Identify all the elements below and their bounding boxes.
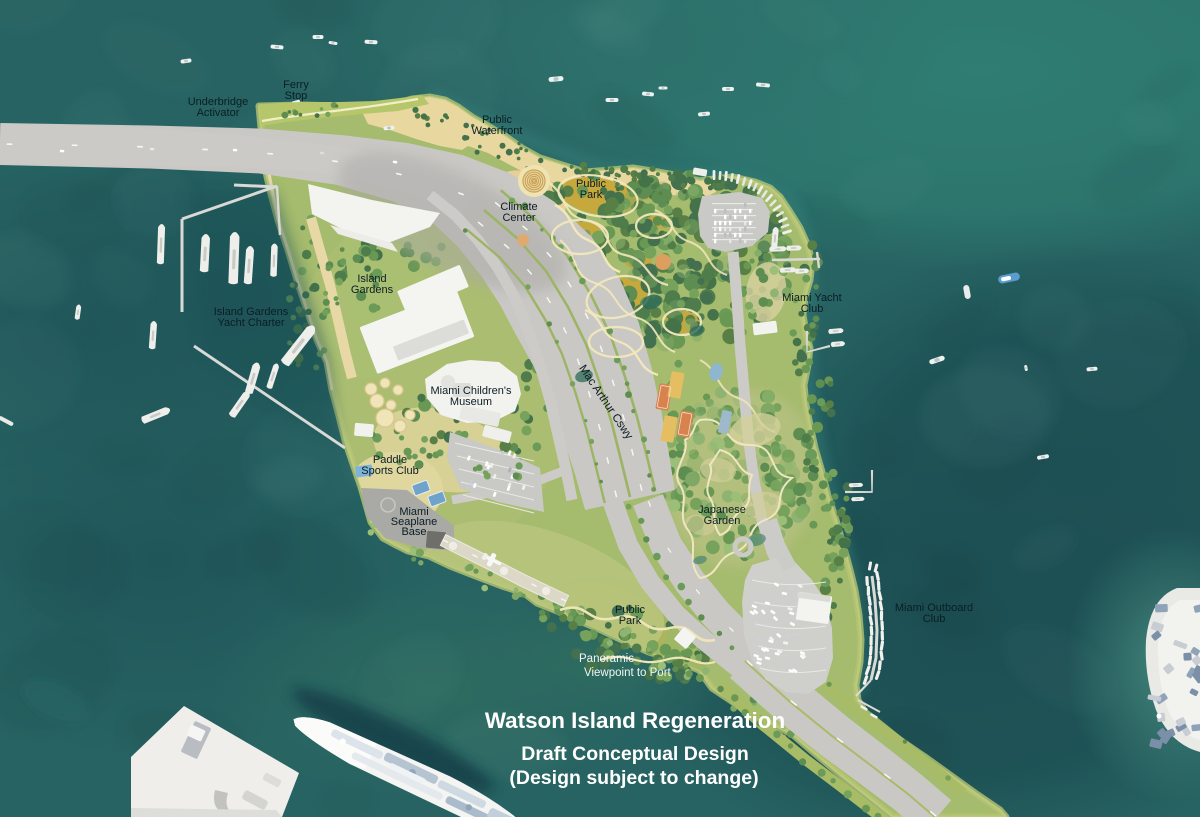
svg-text:Viewpoint to Port: Viewpoint to Port (584, 667, 672, 679)
svg-text:UnderbridgeActivator: UnderbridgeActivator (188, 96, 249, 119)
svg-text:Panoramic: Panoramic (579, 653, 634, 665)
svg-text:PublicPark: PublicPark (576, 178, 606, 201)
svg-text:Island GardensYacht Charter: Island GardensYacht Charter (214, 306, 289, 329)
svg-text:FerryStop: FerryStop (283, 79, 309, 102)
svg-text:ClimateCenter: ClimateCenter (500, 201, 537, 224)
svg-text:PublicPark: PublicPark (615, 604, 645, 627)
svg-text:(Design subject to change): (Design subject to change) (509, 767, 758, 789)
svg-text:Draft Conceptual Design: Draft Conceptual Design (521, 743, 749, 765)
svg-text:Watson Island Regeneration: Watson Island Regeneration (485, 708, 785, 733)
svg-text:JapaneseGarden: JapaneseGarden (698, 504, 746, 527)
